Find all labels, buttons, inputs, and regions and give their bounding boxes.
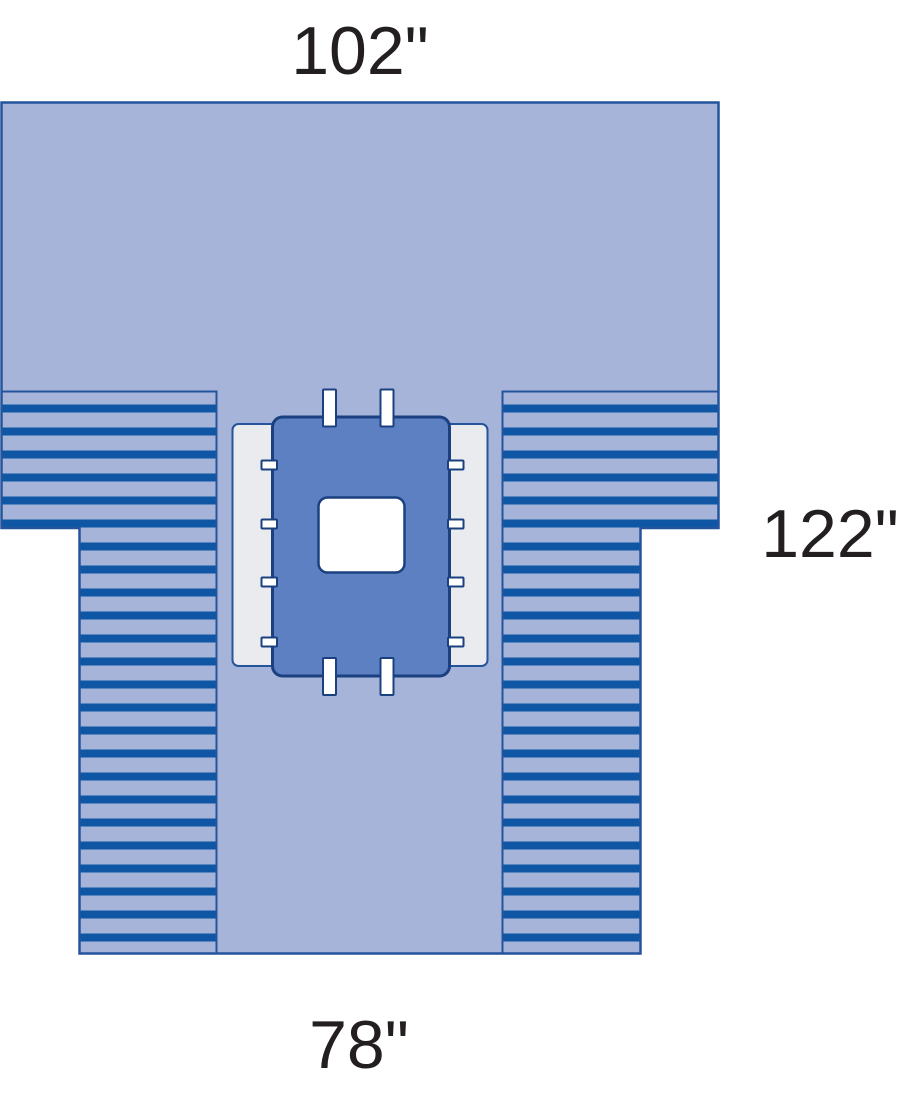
tape-tab-left-1 (262, 461, 278, 470)
tape-tab-left-4 (262, 638, 278, 647)
tape-tab-right-2 (448, 520, 464, 529)
tape-tab-top-2 (381, 390, 394, 427)
tape-tab-right-3 (448, 578, 464, 587)
drape-diagram: 102" 122" 78" (0, 0, 900, 1097)
tape-tab-right-4 (448, 638, 464, 647)
dimension-label-top: 102" (291, 13, 429, 89)
tape-tab-top-1 (323, 390, 336, 427)
tape-tab-bottom-1 (323, 658, 336, 695)
pleated-section-left (2, 392, 217, 954)
fenestration (319, 498, 405, 573)
pleated-section-right (503, 392, 719, 954)
tape-tab-bottom-2 (381, 658, 394, 695)
tape-tab-left-3 (262, 578, 278, 587)
tape-tab-left-2 (262, 520, 278, 529)
dimension-label-right: 122" (761, 496, 899, 572)
drape-diagram-canvas: 102" 122" 78" (0, 0, 900, 1097)
tape-tab-right-1 (448, 461, 464, 470)
dimension-label-bottom: 78" (309, 1007, 409, 1083)
